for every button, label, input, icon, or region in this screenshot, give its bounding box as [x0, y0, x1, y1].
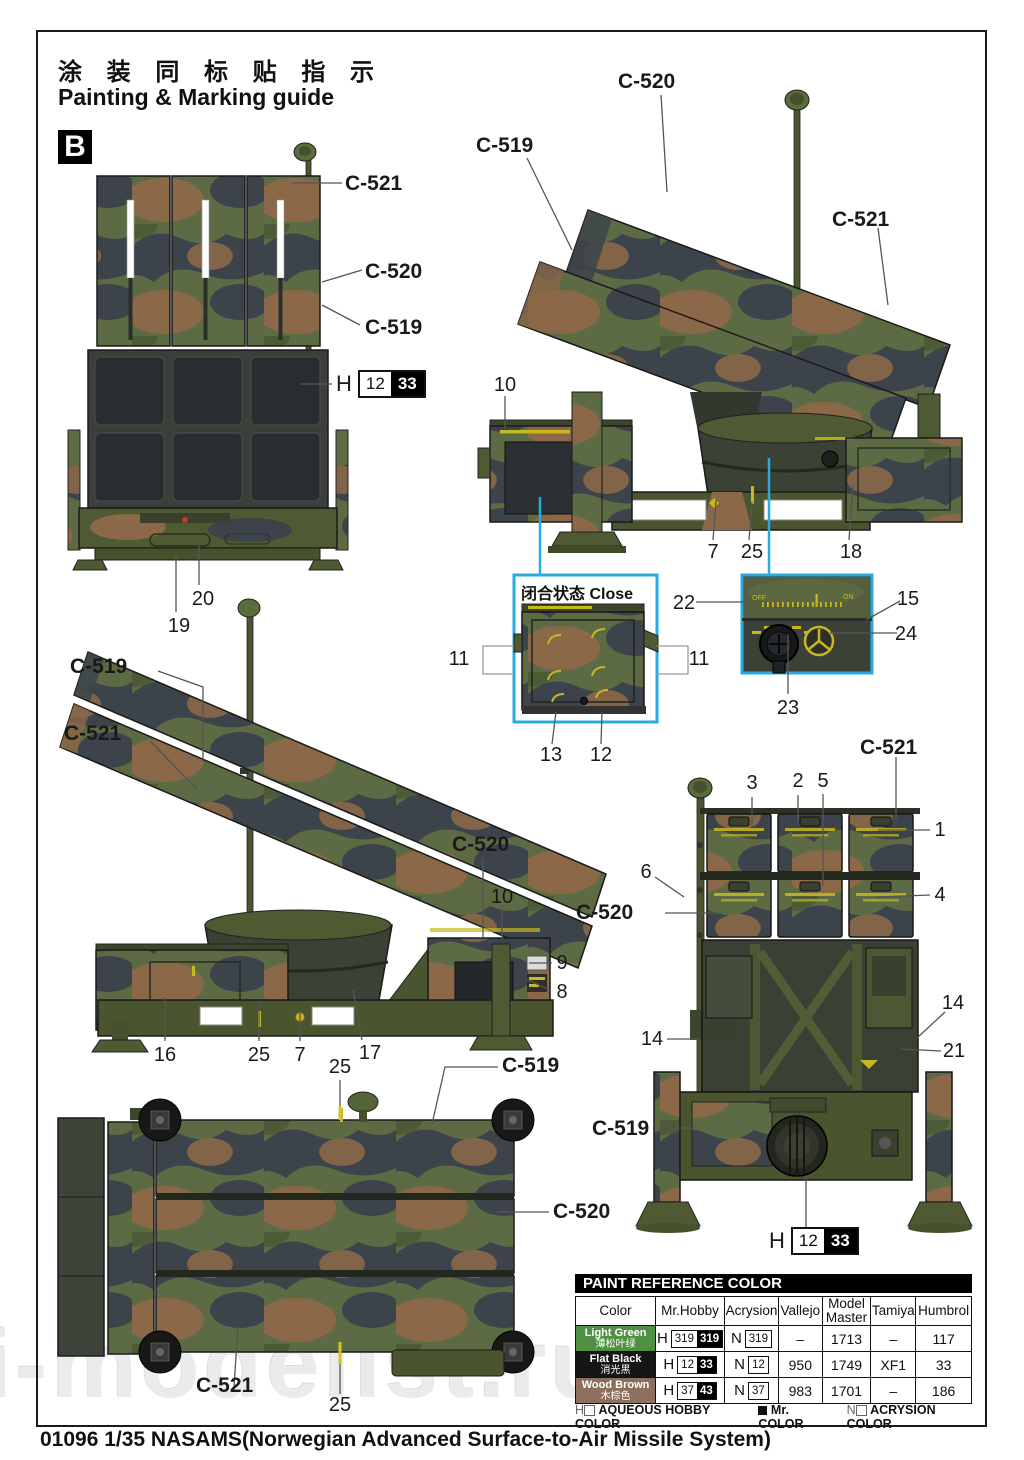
kit-number-and-title: 01096 1/35 NASAMS(Norwegian Advanced Sur… [40, 1428, 771, 1452]
callout-1: 1 [934, 819, 945, 842]
callout-21: 21 [943, 1040, 965, 1063]
callout-7-side: 7 [294, 1044, 305, 1067]
callout-25-side: 25 [248, 1044, 270, 1067]
scale-on-label: ON [843, 594, 854, 601]
wheel-icon [139, 1331, 181, 1373]
callout-24: 24 [895, 623, 917, 646]
paint-reference-table: Color Mr.Hobby Acrysion Vallejo Model Ma… [575, 1296, 972, 1404]
callout-c521-side: C-521 [64, 722, 121, 746]
white-box-icon [856, 1405, 867, 1416]
chip-prefix: H [769, 1228, 785, 1254]
paint-row-wood-brown: Wood Brown 木棕色 H3743 N37 983 1701 – 186 [576, 1378, 972, 1404]
chip-white: 12 [360, 372, 391, 396]
swatch-wood-brown: Wood Brown 木棕色 [576, 1378, 656, 1404]
callout-23: 23 [777, 697, 799, 720]
paint-name-cn: 木棕色 [576, 1391, 655, 1402]
inset-close-title: 闭合状态 Close [521, 580, 633, 604]
legend-h-letter: H [575, 1403, 584, 1417]
callout-5: 5 [817, 770, 828, 793]
paint-chip-rear: H 1233 [769, 1227, 859, 1255]
callout-25-top2: 25 [329, 1394, 351, 1417]
col-humbrol: Humbrol [916, 1297, 972, 1326]
col-acrysion: Acrysion [725, 1297, 779, 1326]
callout-11-left: 11 [449, 648, 470, 671]
callout-c521-top: C-521 [196, 1374, 253, 1398]
chip-black: 33 [391, 372, 424, 396]
paint-name-cn: 薄松叶绿 [576, 1339, 655, 1350]
painting-guide-page: i-modelist.ru 涂 装 同 标 贴 指 示 Painting & M… [0, 0, 1024, 1460]
callout-17: 17 [359, 1042, 381, 1065]
wheel-icon [139, 1099, 181, 1141]
callout-20: 20 [192, 588, 214, 611]
legend-aqueous: AQUEOUS HOBBY COLOR [575, 1403, 710, 1431]
callout-11-right: 11 [689, 648, 710, 671]
callout-9: 9 [556, 952, 567, 975]
callout-13: 13 [540, 744, 562, 767]
chip-white: 12 [793, 1229, 824, 1253]
paint-name-cn: 消光黑 [576, 1365, 655, 1376]
callout-19: 19 [168, 615, 190, 638]
callout-3: 3 [746, 772, 757, 795]
white-box-icon [584, 1405, 595, 1416]
callout-c520-quarter: C-520 [618, 70, 675, 94]
col-modelmaster: Model Master [822, 1297, 871, 1326]
paint-name-en: Flat Black [576, 1353, 655, 1365]
paint-brand-legend: H AQUEOUS HOBBY COLOR Mr. COLOR N ACRYSI… [575, 1403, 972, 1431]
callout-25-top: 25 [329, 1056, 351, 1079]
legend-n-letter: N [847, 1403, 856, 1417]
paint-chip-front: H 1233 [336, 370, 426, 398]
callout-10-side: 10 [491, 886, 513, 909]
callout-18: 18 [840, 541, 862, 564]
callout-c520-front: C-520 [365, 260, 422, 284]
callout-2: 2 [792, 770, 803, 793]
rear-view-illustration [636, 778, 972, 1233]
paint-table-header-row: Color Mr.Hobby Acrysion Vallejo Model Ma… [576, 1297, 972, 1326]
callout-7-quarter: 7 [707, 541, 718, 564]
wheel-icon [492, 1099, 534, 1141]
black-box-icon [758, 1406, 767, 1415]
paint-row-flat-black: Flat Black 消光黑 H1233 N12 950 1749 XF1 33 [576, 1352, 972, 1378]
callout-c519-front: C-519 [365, 316, 422, 340]
callout-25-quarter: 25 [741, 541, 763, 564]
callout-c521-quarter: C-521 [832, 208, 889, 232]
callout-c520-side: C-520 [452, 833, 509, 857]
page-title-en: Painting & Marking guide [58, 84, 334, 111]
callout-14-right: 14 [942, 992, 964, 1015]
callout-14-left: 14 [641, 1028, 663, 1051]
callout-c521-rear: C-521 [860, 736, 917, 760]
callout-c519-rear: C-519 [592, 1117, 649, 1141]
swatch-flat-black: Flat Black 消光黑 [576, 1352, 656, 1378]
chip-black: 33 [824, 1229, 857, 1253]
page-title-cn: 涂 装 同 标 贴 指 示 [58, 52, 383, 87]
callout-15: 15 [897, 588, 919, 611]
paint-row-light-green: Light Green 薄松叶绿 H319319 N319 – 1713 – 1… [576, 1326, 972, 1352]
swatch-light-green: Light Green 薄松叶绿 [576, 1326, 656, 1352]
callout-16: 16 [154, 1044, 176, 1067]
callout-10-quarter: 10 [494, 374, 516, 397]
col-mrhobby: Mr.Hobby [656, 1297, 725, 1326]
front-view-illustration [68, 143, 348, 570]
col-tamiya: Tamiya [871, 1297, 916, 1326]
callout-c520-top: C-520 [553, 1200, 610, 1224]
callout-c520-rear: C-520 [576, 901, 633, 925]
section-letter-badge: B [58, 130, 92, 164]
callout-c521-front: C-521 [345, 172, 402, 196]
callout-6: 6 [640, 861, 651, 884]
paint-table-title: PAINT REFERENCE COLOR [575, 1274, 972, 1293]
callout-c519-side: C-519 [70, 655, 127, 679]
paint-name-en: Light Green [576, 1327, 655, 1339]
callout-22: 22 [673, 592, 695, 615]
paint-name-en: Wood Brown [576, 1379, 655, 1391]
callout-12: 12 [590, 744, 612, 767]
callout-c519-top: C-519 [502, 1054, 559, 1078]
chip-prefix: H [336, 371, 352, 397]
callout-8: 8 [556, 981, 567, 1004]
col-vallejo: Vallejo [778, 1297, 822, 1326]
three-quarter-view-illustration [478, 90, 962, 553]
col-color: Color [576, 1297, 656, 1326]
top-view-illustration [58, 1092, 534, 1376]
inset-control-detail: OFF ON [742, 575, 872, 673]
callout-4: 4 [934, 884, 945, 907]
scale-off-label: OFF [752, 595, 766, 602]
callout-c519-quarter: C-519 [476, 134, 533, 158]
